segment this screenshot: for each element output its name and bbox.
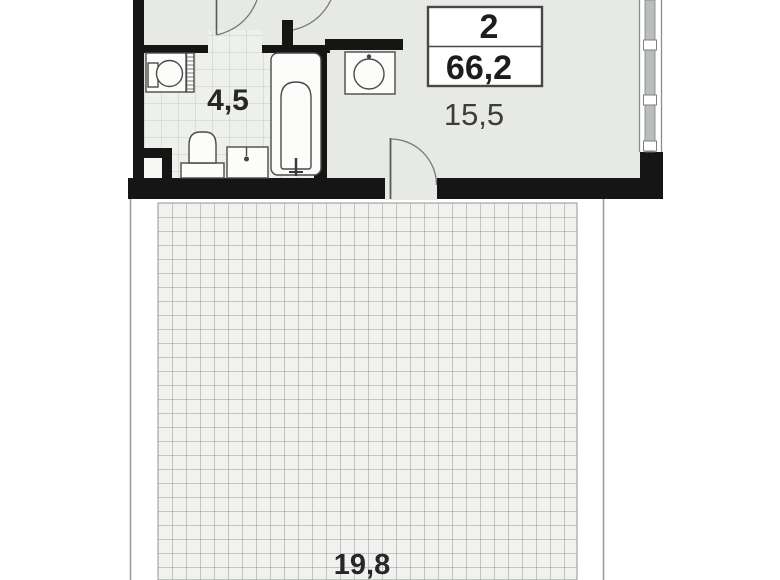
- duct-pocket: [144, 158, 162, 178]
- terrace-floor-grid: [158, 203, 577, 580]
- sink-pedestal: [189, 132, 216, 163]
- terrace-area-label: 19,8: [334, 549, 390, 580]
- floor-plan-page: 2 66,2 4,5 15,5 19,8: [0, 0, 780, 580]
- toilet-bowl: [157, 61, 183, 87]
- vent-shaft-box: [187, 53, 195, 92]
- washer-box: [227, 147, 268, 178]
- toilet-icon: [146, 53, 186, 92]
- wall-entry-door-stub: [282, 20, 293, 52]
- badge-total-area: 66,2: [446, 49, 512, 87]
- washer-knob: [244, 157, 249, 162]
- window-glazing: [645, 0, 655, 152]
- bathtub-icon: [271, 53, 321, 176]
- bathtub-inner: [281, 82, 311, 169]
- wall-bathroom-top-left: [142, 45, 208, 53]
- badge-rooms-count: 2: [480, 8, 499, 46]
- kitchen-counter-icon: [345, 52, 395, 94]
- wall-corner-bar: [133, 148, 172, 158]
- window-pane-marker: [644, 95, 657, 105]
- kitchen-sink-bowl: [354, 59, 384, 89]
- living-area-label: 15,5: [444, 97, 504, 132]
- unit-badge: 2 66,2: [428, 7, 542, 87]
- sink-base: [181, 163, 224, 178]
- wall-corner-post: [162, 158, 172, 178]
- wall-kitchen-bar: [325, 39, 403, 50]
- wall-main-right: [437, 178, 663, 199]
- window-pane-marker: [644, 40, 657, 50]
- washer-icon: [227, 147, 268, 178]
- wall-right-corner: [640, 152, 663, 198]
- floor-plan-svg: 2 66,2 4,5 15,5 19,8: [0, 0, 780, 580]
- wall-main-left: [128, 178, 385, 199]
- bathroom-area-label: 4,5: [207, 84, 249, 117]
- terrace-door-opening-floor: [385, 178, 437, 200]
- vent-shaft-icon: [187, 53, 195, 92]
- kitchen-sink-tap: [367, 54, 371, 58]
- window-pane-marker: [644, 141, 657, 151]
